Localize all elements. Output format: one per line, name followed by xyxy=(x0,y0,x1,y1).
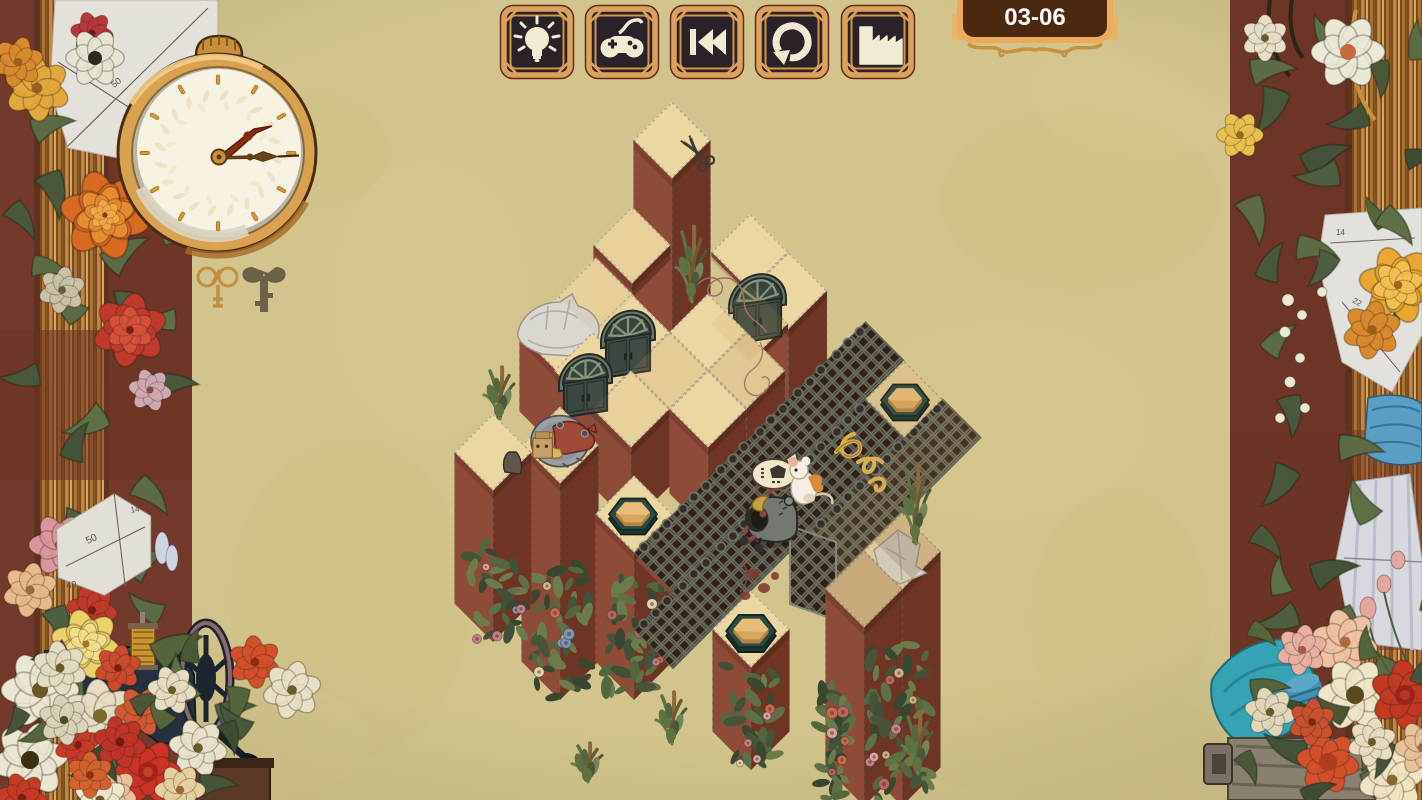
svg-text:03-06: 03-06 xyxy=(1004,4,1065,31)
svg-text:14: 14 xyxy=(1336,228,1345,237)
svg-text:14: 14 xyxy=(130,504,141,514)
svg-text:40: 40 xyxy=(66,579,77,590)
